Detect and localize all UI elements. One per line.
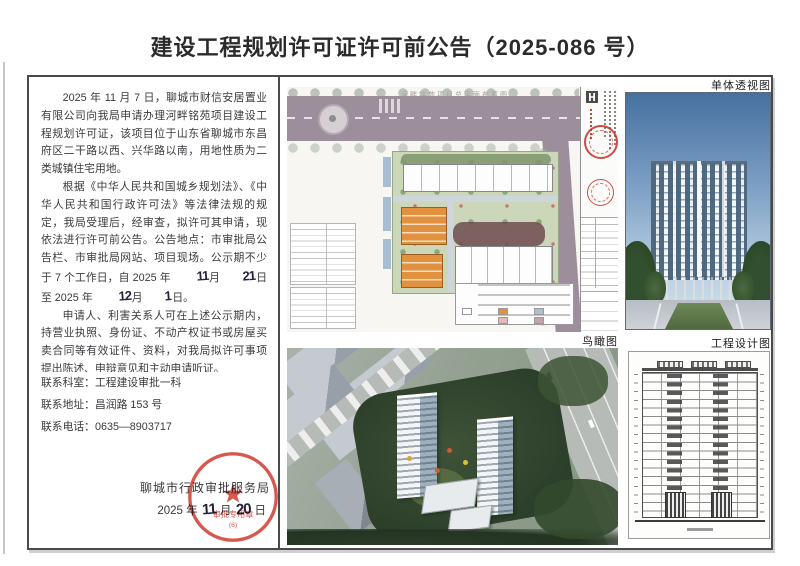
notice-p2-end: 日。	[172, 292, 194, 304]
shrub-icon	[407, 456, 412, 461]
site-plan-table-1	[290, 223, 356, 285]
notice-table: 2025 年 11 月 7 日，聊城市财信安居置业有限公司向我局申请办理河畔铭苑…	[27, 75, 773, 550]
aerial-photo	[287, 348, 618, 545]
tower-two	[477, 416, 513, 516]
facade-mullion	[697, 161, 701, 277]
building-footprint-orange-1	[401, 207, 447, 245]
car-icon	[588, 419, 595, 428]
notice-text-cell: 2025 年 11 月 7 日，聊城市财信安居置业有限公司向我局申请办理河畔铭苑…	[29, 77, 280, 548]
official-seal-icon: 聊城市行政审批服务局 审批专用章 (6)	[185, 449, 281, 545]
building-elevation-grid	[642, 372, 758, 518]
seal-inner-text: 审批专用章	[213, 509, 254, 519]
building-footprint-north	[403, 164, 553, 192]
handwritten-end-day: 1	[142, 287, 173, 307]
month-label: 月	[209, 272, 220, 284]
landscape-blob-dark	[453, 222, 545, 246]
legend-swatch	[534, 308, 544, 315]
elevation-drawing	[628, 351, 770, 539]
site-plan-figure: 河畔铭苑项目总平面布置图	[287, 87, 618, 332]
site-plan-road-north	[287, 96, 580, 141]
parking-strip-icon	[383, 239, 391, 269]
notice-paragraph-3: 申请人、利害关系人可在上述公示期内，持营业执照、身份证、不动产权证书或房屋买卖合…	[41, 308, 267, 372]
seal-star-icon	[223, 484, 243, 503]
site-plan-parcel	[392, 151, 559, 294]
ground-line	[635, 520, 765, 522]
roof-structure	[691, 361, 717, 368]
tree-cluster	[538, 356, 608, 406]
notice-body: 2025 年 11 月 7 日，聊城市财信安居置业有限公司向我局申请办理河畔铭苑…	[41, 90, 267, 372]
red-stamp-icon	[587, 179, 614, 206]
parcel-path-v	[448, 196, 454, 292]
perspective-label: 单体透视图	[625, 77, 771, 93]
roundabout-icon	[318, 104, 349, 135]
seal-number: (6)	[229, 522, 237, 529]
logo-glyph	[589, 93, 595, 101]
red-stamp-icon	[584, 125, 618, 159]
entrance-block	[665, 492, 686, 518]
roundabout-center	[329, 115, 336, 122]
shrub-icon	[435, 468, 440, 473]
handwritten-start-month: 11	[173, 267, 209, 287]
contact-department: 联系科室：工程建设审批一科	[41, 372, 267, 394]
tower-one	[397, 392, 437, 498]
perspective-photo	[625, 92, 771, 330]
dimension-ticks-right	[760, 374, 764, 516]
notice-paragraph-2: 根据《中华人民共和国城乡规划法》、《中华人民共和国行政许可法》等法律法规的规定，…	[41, 179, 267, 308]
title-block-table	[581, 217, 618, 288]
contact-block: 联系科室：工程建设审批一科 联系地址：昌润路 153 号 联系电话：0635—8…	[41, 372, 267, 438]
figures-cell: 单体透视图 鸟瞰图 工程设计图 河畔铭苑项目总平面布置图	[280, 77, 771, 548]
building-footprint-south	[455, 246, 553, 288]
stamp-inner-ring	[591, 183, 610, 202]
title-block-table	[581, 291, 618, 332]
entrance-block	[711, 492, 732, 518]
legend-swatch	[534, 317, 544, 324]
contact-address: 联系地址：昌润路 153 号	[41, 394, 267, 416]
scale-bar	[687, 528, 713, 531]
handwritten-end-month: 12	[95, 287, 132, 307]
aerial-label: 鸟瞰图	[287, 333, 618, 349]
legend-swatch	[498, 308, 508, 315]
site-plan-title-block	[580, 87, 618, 332]
building-footprint-orange-2	[401, 254, 443, 288]
parking-strip-icon	[383, 197, 391, 231]
shrub-icon	[463, 460, 468, 465]
table-divider	[326, 288, 327, 328]
tree-cluster	[534, 479, 618, 539]
handwritten-start-day: 21	[219, 267, 256, 287]
table-divider	[326, 224, 327, 284]
notice-paragraph-1: 2025 年 11 月 7 日，聊城市财信安居置业有限公司向我局申请办理河畔铭苑…	[41, 90, 267, 179]
parking-strip-icon	[383, 157, 391, 187]
roof-structure	[725, 361, 751, 368]
site-plan-table-2	[290, 287, 356, 329]
site-plan-legend	[455, 283, 574, 325]
table-divider	[595, 218, 596, 288]
parapet-line	[642, 368, 758, 371]
scan-edge-artifact	[3, 62, 5, 554]
legend-swatch	[462, 308, 472, 315]
parcel-path-h	[393, 196, 558, 202]
facade-mullion	[673, 161, 676, 277]
legend-swatch	[498, 317, 508, 324]
page-title: 建设工程规划许可证许可前公告（2025-086 号）	[0, 30, 800, 62]
shrub-icon	[447, 448, 452, 453]
contact-phone: 联系电话：0635—8903717	[41, 416, 267, 438]
elevation-label: 工程设计图	[625, 335, 771, 351]
crosswalk-icon	[379, 99, 401, 113]
firm-logo-icon	[586, 91, 598, 103]
roof-structure	[657, 361, 683, 368]
stamp-inner-ring	[589, 130, 613, 154]
scanned-notice-page: 建设工程规划许可证许可前公告（2025-086 号） 2025 年 11 月 7…	[0, 0, 800, 566]
dimension-ticks-left	[634, 374, 638, 516]
facade-mullion	[722, 161, 725, 277]
